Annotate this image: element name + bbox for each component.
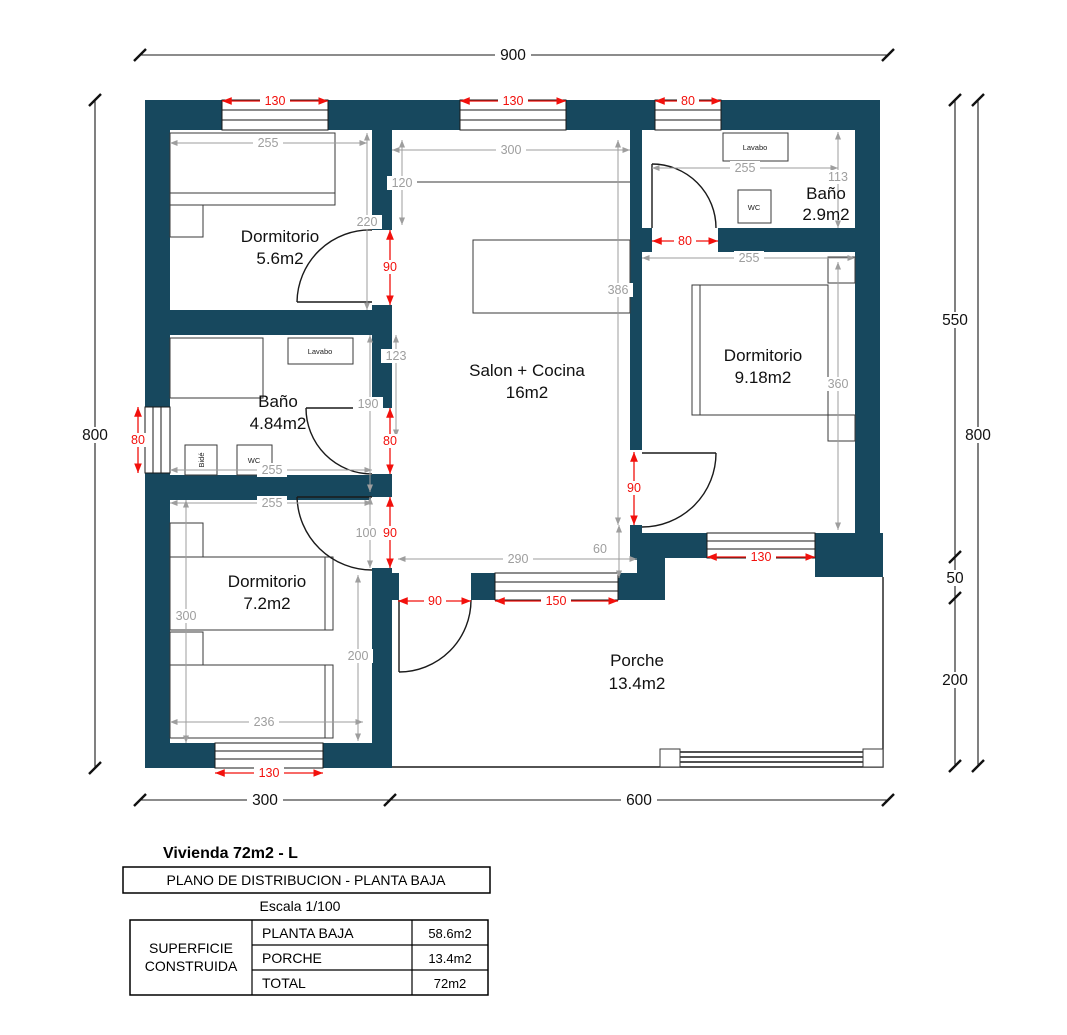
table-row1-label: PLANTA BAJA <box>262 925 354 941</box>
plan-title: Vivienda 72m2 - L <box>163 845 298 862</box>
dim-overall-bottom-right: 600 <box>626 792 652 809</box>
dim-overall-left: 800 <box>82 427 108 444</box>
nightstand-dorm1 <box>170 205 203 237</box>
room-porche-name: Porche <box>610 651 664 670</box>
dim-overall-right-outer: 800 <box>965 427 991 444</box>
table-row3-value: 72m2 <box>434 976 467 991</box>
dim-salon-door-span: 290 <box>508 552 529 566</box>
room-dorm1-name: Dormitorio <box>241 227 319 246</box>
dim-dorm3-width: 255 <box>739 251 760 265</box>
table-row1-value: 58.6m2 <box>428 926 471 941</box>
room-bano2-area: 2.9m2 <box>802 205 849 224</box>
door-entry <box>399 600 471 672</box>
railing-post-left <box>660 749 680 767</box>
lavabo-bano1-label: Lavabo <box>308 347 333 356</box>
dim-win-salon-south: 150 <box>546 594 567 608</box>
dim-overall-right-mid: 50 <box>946 570 964 587</box>
room-dorm3-area: 9.18m2 <box>735 368 792 387</box>
dim-dorm2-height: 300 <box>176 609 197 623</box>
table-row2-value: 13.4m2 <box>428 951 471 966</box>
dim-win-dorm1: 130 <box>265 94 286 108</box>
furniture: Lavabo Bidé WC Lavabo WC <box>170 133 855 738</box>
bide-bano1-label: Bidé <box>197 452 206 467</box>
floor-plan-svg: Lavabo Bidé WC Lavabo WC <box>0 0 1067 1035</box>
lavabo-bano2-label: Lavabo <box>743 143 768 152</box>
room-dorm2-name: Dormitorio <box>228 572 306 591</box>
dim-dorm1-width: 255 <box>258 136 279 150</box>
floor-plan-page: Lavabo Bidé WC Lavabo WC <box>0 0 1067 1035</box>
title-block: Vivienda 72m2 - L PLANO DE DISTRIBUCION … <box>123 845 490 995</box>
dim-door-bano2: 80 <box>678 234 692 248</box>
plan-scale: Escala 1/100 <box>260 898 341 914</box>
dim-bano2-width: 255 <box>735 161 756 175</box>
surface-table: SUPERFICIE CONSTRUIDA PLANTA BAJA 58.6m2… <box>130 920 488 995</box>
window-dorm2 <box>215 743 323 768</box>
room-porche-area: 13.4m2 <box>609 674 666 693</box>
porche-outline <box>392 577 883 767</box>
porche-railing <box>660 749 883 767</box>
dim-bano2-height: 113 <box>828 170 848 184</box>
room-dorm3-name: Dormitorio <box>724 346 802 365</box>
dim-door-bano1: 80 <box>383 434 397 448</box>
room-bano1-name: Baño <box>258 392 298 411</box>
dim-win-salon: 130 <box>503 94 524 108</box>
dim-win-dorm2: 130 <box>259 766 280 780</box>
door-dorm3 <box>642 453 716 527</box>
kitchen-island <box>473 240 630 313</box>
table-row2-label: PORCHE <box>262 950 322 966</box>
dim-win-bano1: 80 <box>131 433 145 447</box>
room-dorm1-area: 5.6m2 <box>256 249 303 268</box>
dim-bano1-lower: 190 <box>358 397 379 411</box>
dim-bano1-width: 255 <box>262 463 283 477</box>
dim-dorm2-right: 200 <box>348 649 369 663</box>
gray-dimensions: 255 220 300 120 386 290 60 123 190 255 2… <box>170 132 855 743</box>
dim-bano1-upper: 123 <box>386 349 407 363</box>
dim-door-dorm1: 90 <box>383 260 397 274</box>
room-bano2-name: Baño <box>806 184 846 203</box>
room-salon-area: 16m2 <box>506 383 549 402</box>
dim-door-entry: 90 <box>428 594 442 608</box>
nightstand2-dorm3 <box>828 415 855 441</box>
dim-door-dorm3: 90 <box>627 481 641 495</box>
wall-right <box>855 100 880 560</box>
door-bano2 <box>652 164 716 228</box>
dim-step: 60 <box>593 542 607 556</box>
room-dorm2-area: 7.2m2 <box>243 594 290 613</box>
wall-connector <box>637 558 665 573</box>
wc-bano2-label: WC <box>748 203 761 212</box>
dim-dorm2-width: 255 <box>262 496 283 510</box>
dim-overall-top: 900 <box>500 47 526 64</box>
dim-door-dorm2: 90 <box>383 526 397 540</box>
wall-dorm1-bano1 <box>170 310 372 335</box>
dim-overall-right-upper: 550 <box>942 312 968 329</box>
dim-dorm2-bed: 236 <box>254 715 275 729</box>
dim-salon-width: 300 <box>501 143 522 157</box>
bed-dorm1 <box>170 133 335 205</box>
dim-dorm3-height: 360 <box>828 377 849 391</box>
table-row3-label: TOTAL <box>262 975 306 991</box>
dim-overall-right-lower: 200 <box>942 672 968 689</box>
table-header-line2: CONSTRUIDA <box>145 958 238 974</box>
door-bano1 <box>306 408 372 474</box>
room-salon-name: Salon + Cocina <box>469 361 585 380</box>
nightstand1-dorm3 <box>828 257 855 283</box>
room-bano1-area: 4.84m2 <box>250 414 307 433</box>
dim-salon-height: 386 <box>608 283 629 297</box>
plan-subtitle: PLANO DE DISTRIBUCION - PLANTA BAJA <box>166 872 446 888</box>
dim-dorm1-height: 220 <box>357 215 378 229</box>
dim-win-dorm3: 130 <box>751 550 772 564</box>
dim-win-bano2: 80 <box>681 94 695 108</box>
railing-post-right <box>863 749 883 767</box>
table-header-line1: SUPERFICIE <box>149 940 233 956</box>
dim-dorm2-door-off: 100 <box>356 526 377 540</box>
dim-overall-bottom-left: 300 <box>252 792 278 809</box>
dim-kitchen-depth: 120 <box>392 176 413 190</box>
shower-bano1 <box>170 338 263 398</box>
